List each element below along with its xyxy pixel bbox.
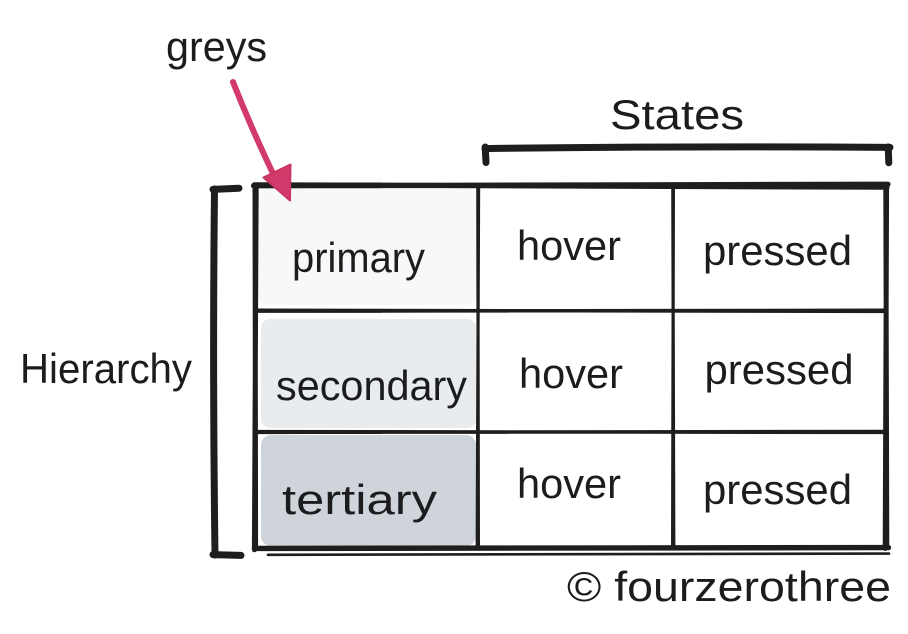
svg-text:Hierarchy: Hierarchy	[20, 345, 192, 392]
svg-text:primary: primary	[292, 234, 425, 281]
svg-text:© fourzerothree: © fourzerothree	[567, 563, 891, 610]
svg-text:hover: hover	[517, 222, 621, 269]
svg-text:hover: hover	[517, 460, 621, 507]
svg-text:hover: hover	[519, 350, 623, 397]
svg-text:pressed: pressed	[703, 466, 852, 513]
svg-text:secondary: secondary	[276, 362, 467, 409]
svg-text:tertiary: tertiary	[282, 476, 437, 523]
svg-text:States: States	[610, 91, 744, 138]
svg-text:greys: greys	[166, 23, 267, 70]
svg-text:pressed: pressed	[703, 227, 852, 274]
svg-text:pressed: pressed	[705, 346, 854, 393]
